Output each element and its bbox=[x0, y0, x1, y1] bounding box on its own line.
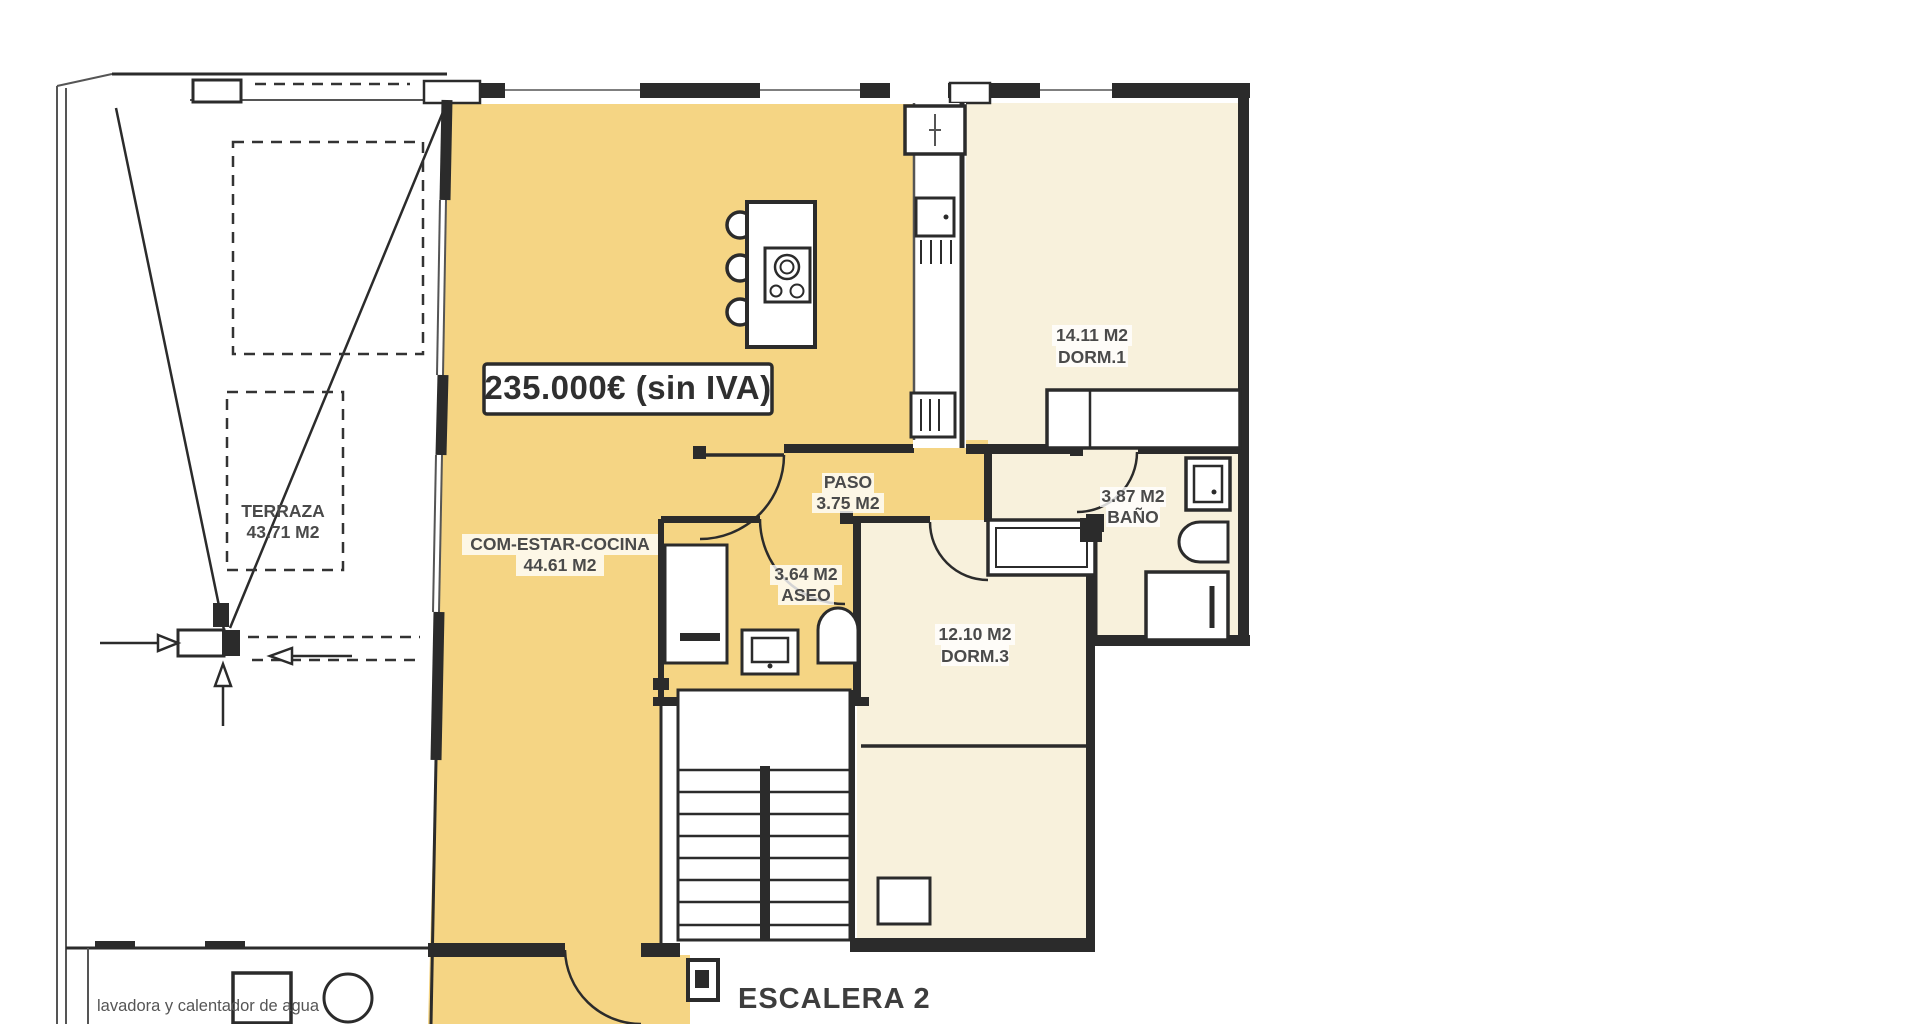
toilet-icon bbox=[1179, 522, 1228, 562]
terrace: lavadora y calentador de agua TERRAZA 43… bbox=[57, 74, 447, 1024]
stove-icon bbox=[765, 248, 810, 302]
room-label-aseo: ASEO bbox=[781, 585, 831, 605]
drain-mark bbox=[213, 603, 229, 627]
vent-icon bbox=[911, 393, 955, 437]
stairs bbox=[653, 678, 853, 1000]
room-label-paso: PASO bbox=[824, 472, 872, 492]
living-bottom-strip bbox=[428, 700, 690, 1024]
service-channel bbox=[905, 103, 966, 448]
shaft-box bbox=[878, 878, 930, 924]
room-label-bano: BAÑO bbox=[1107, 506, 1159, 527]
stair-door-box bbox=[688, 960, 718, 1000]
stair-rail bbox=[760, 766, 770, 940]
shower-icon bbox=[665, 545, 727, 663]
dorm3-closet bbox=[988, 518, 1102, 575]
room-label-salon: COM-ESTAR-COCINA bbox=[470, 534, 650, 554]
toilet-icon bbox=[818, 608, 858, 663]
slope-line-right bbox=[230, 112, 443, 628]
floor-plan-svg: lavadora y calentador de agua TERRAZA 43… bbox=[0, 0, 1920, 1024]
slope-line-left bbox=[116, 108, 224, 630]
terrace-pillar bbox=[193, 80, 241, 102]
dorm3-right-wall bbox=[1086, 535, 1095, 952]
dashed-rect-upper bbox=[233, 142, 423, 354]
water-heater-icon bbox=[324, 974, 372, 1022]
drain-outlet bbox=[222, 630, 240, 656]
drain-box bbox=[178, 630, 224, 656]
right-wall bbox=[1238, 83, 1249, 643]
drain-arrow-left bbox=[100, 635, 178, 651]
dashed-rect-lower bbox=[227, 392, 343, 570]
price-text: 235.000€ (sin IVA) bbox=[484, 369, 771, 406]
floor-plan-page: lavadora y calentador de agua TERRAZA 43… bbox=[0, 0, 1920, 1024]
dorm1-closet bbox=[1047, 390, 1240, 448]
area-label-aseo: 3.64 M2 bbox=[774, 564, 837, 584]
sink-icon bbox=[742, 630, 798, 674]
area-label-paso: 3.75 M2 bbox=[816, 493, 879, 513]
price-tag: 235.000€ (sin IVA) bbox=[484, 364, 772, 414]
sink-icon bbox=[1186, 458, 1230, 510]
area-label-salon: 44.61 M2 bbox=[524, 555, 597, 575]
room-label-terraza: TERRAZA bbox=[241, 501, 325, 521]
area-label-terraza: 43.71 M2 bbox=[247, 522, 320, 542]
room-label-dorm1: DORM.1 bbox=[1058, 347, 1126, 367]
terrace-note: lavadora y calentador de agua bbox=[97, 997, 320, 1015]
drain-arrow-up bbox=[215, 664, 231, 726]
room-label-dorm3: DORM.3 bbox=[941, 646, 1009, 666]
area-label-bano: 3.87 M2 bbox=[1101, 486, 1164, 506]
stairwell-label: ESCALERA 2 bbox=[738, 983, 931, 1015]
area-label-dorm3: 12.10 M2 bbox=[939, 624, 1012, 644]
drain-arrow-right bbox=[270, 648, 352, 664]
bathtub-icon bbox=[1146, 572, 1228, 640]
area-label-dorm1: 14.11 M2 bbox=[1056, 325, 1128, 345]
kitchen-island bbox=[727, 202, 815, 347]
